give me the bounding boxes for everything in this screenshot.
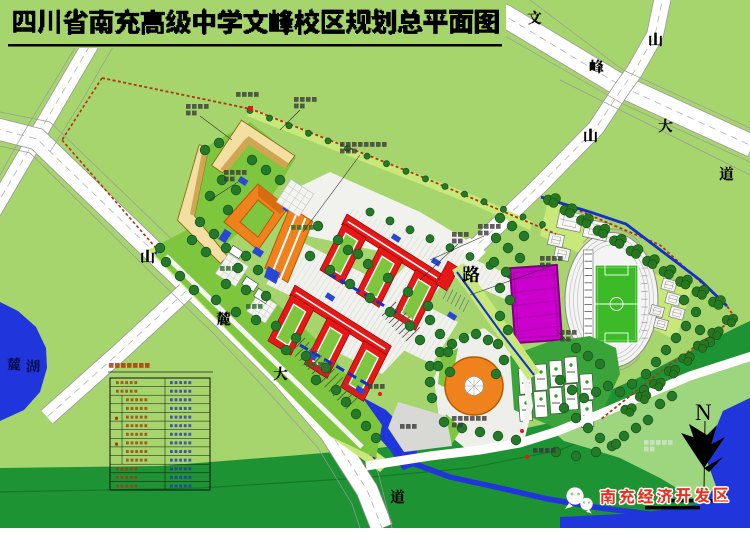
svg-text:N: N — [695, 400, 712, 425]
